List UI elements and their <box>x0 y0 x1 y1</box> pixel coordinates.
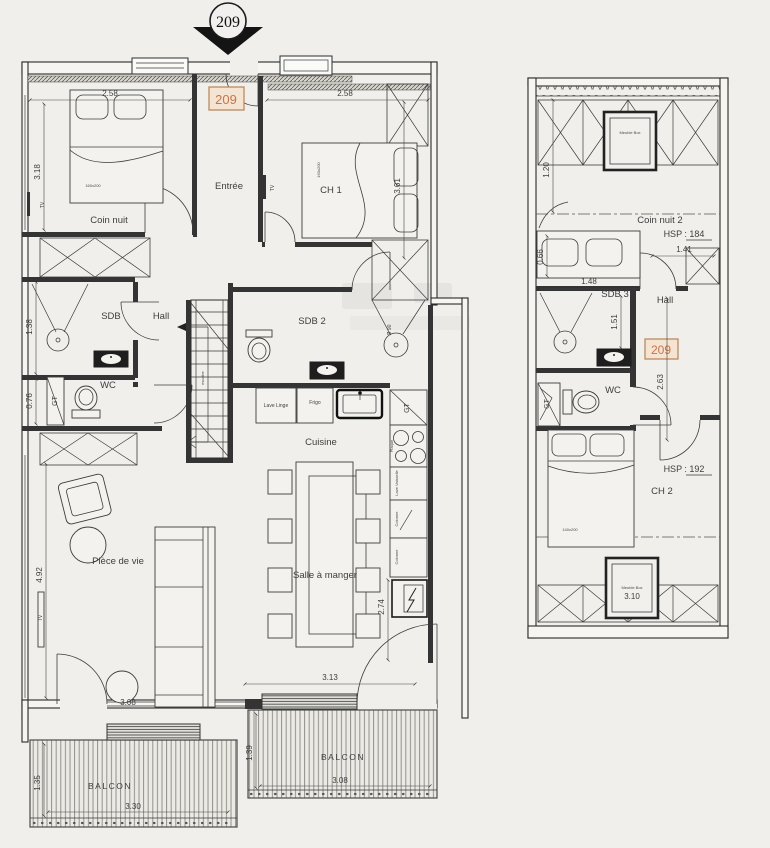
room-label-balcon-left: BALCON <box>88 781 132 791</box>
dim-label: 1.35 <box>33 775 42 791</box>
dim-label: 3.61 <box>393 178 402 194</box>
room-label-ch1: CH 1 <box>320 185 342 196</box>
hsp-note: HSP : 192 <box>664 464 705 474</box>
room-label-hall: Hall <box>657 295 673 306</box>
bed <box>70 90 163 203</box>
dim-label: 1.41 <box>676 245 692 254</box>
room-label-balcon-right: BALCON <box>321 752 365 762</box>
room-label-ch2: CH 2 <box>651 486 673 497</box>
bed-size-label: 160x200 <box>316 162 321 178</box>
shower <box>384 333 408 357</box>
window <box>132 58 188 74</box>
unit-main-level: escalier 160x200 160x200 <box>22 56 468 827</box>
dim-label: 2.63 <box>656 374 665 390</box>
unit-badge: 209 <box>209 87 244 110</box>
dim-label: 3.18 <box>33 164 42 180</box>
watermark <box>342 283 470 330</box>
bed <box>537 231 640 278</box>
gt-label: GT <box>544 398 551 408</box>
cooktop <box>390 425 427 467</box>
floor-plan-drawing: 209 <box>0 0 770 848</box>
room-label-salle-a-manger: Salle à manger <box>293 570 357 581</box>
sdb2-room: Ø 90 <box>246 300 425 379</box>
dining-table <box>296 462 353 647</box>
threshold <box>107 724 200 740</box>
tv-mark <box>263 175 266 199</box>
tv-label: TV <box>270 184 276 191</box>
dim-label: 3.10 <box>624 592 640 601</box>
bed <box>548 430 634 547</box>
living-room <box>38 473 215 707</box>
tv-label: TV <box>38 614 44 621</box>
wc2-room: GT <box>538 383 599 426</box>
section-marker: 209 <box>193 3 263 55</box>
meuble-box-label: Meuble Box <box>621 585 642 590</box>
closet-row-bottom: Meuble Box 3.10 <box>538 558 718 622</box>
bed-size-label: 140x200 <box>562 527 578 532</box>
threshold <box>262 694 357 709</box>
dim-label: 2.58 <box>102 89 118 98</box>
unit-badge-upper: 209 <box>645 339 678 359</box>
sdb-room <box>32 284 128 367</box>
dim-label: 4.92 <box>35 567 44 583</box>
coin-nuit-room: 160x200 <box>27 90 163 216</box>
sofa <box>155 527 215 707</box>
meuble-box <box>604 112 656 170</box>
room-label-sdb: SDB <box>101 311 121 322</box>
toilet <box>75 386 97 410</box>
gt-label: GT <box>52 395 59 405</box>
meuble-box-label: Meuble Box <box>619 130 640 135</box>
toilet <box>248 338 270 362</box>
cooktop-label: Plaque <box>389 439 394 452</box>
tall-unit-label: Colonne <box>394 549 399 565</box>
room-label-piece-de-vie: Pièce de vie <box>92 556 144 567</box>
room-label-coin-nuit: Coin nuit <box>90 215 128 226</box>
balcony-left <box>30 724 237 827</box>
unit-upper-level: Meuble Box Meuble Box 3.10 <box>528 78 728 638</box>
dim-label: 3.08 <box>120 698 136 707</box>
stairs-note: escalier <box>200 370 205 384</box>
hsp-note: HSP : 184 <box>664 229 705 239</box>
dim-label: 2.58 <box>337 89 353 98</box>
unit-number: 209 <box>651 343 671 357</box>
armchair <box>57 473 112 525</box>
room-label-hall: Hall <box>153 311 169 322</box>
stairs-up-arrow <box>177 323 186 331</box>
room-label-coin-nuit2: Coin nuit 2 <box>637 215 682 226</box>
toilet <box>573 391 599 413</box>
tv-mark <box>27 192 30 216</box>
dim-label: 1.48 <box>581 277 597 286</box>
washer-label: Lave Linge <box>264 403 289 409</box>
room-label-entree: Entrée <box>215 181 243 192</box>
fridge-label: Frigo <box>309 400 321 406</box>
dim-label: 0.76 <box>25 393 34 409</box>
hatch-band <box>28 76 352 82</box>
dim-label: 2.74 <box>377 599 386 615</box>
room-label-cuisine: Cuisine <box>305 437 337 448</box>
room-label-sdb2: SDB 2 <box>298 316 325 327</box>
gt-label: GT <box>404 402 411 412</box>
dim-label: 1.20 <box>542 162 551 178</box>
room-label-sdb3: SDB 3 <box>601 289 628 300</box>
bed-size-label: 160x200 <box>85 183 101 188</box>
closet-row-top: Meuble Box <box>538 100 718 170</box>
dim-label: 0.66 <box>536 249 545 265</box>
dim-label: 3.13 <box>322 673 338 682</box>
dim-label: 1.39 <box>245 745 254 761</box>
dim-label: 1.38 <box>25 319 34 335</box>
dim-label: 1.51 <box>610 314 619 330</box>
dim-label: 3.08 <box>332 776 348 785</box>
room-label-wc: WC <box>605 385 621 396</box>
shower-diameter: Ø 90 <box>387 324 393 335</box>
unit-number: 209 <box>215 92 237 107</box>
ch2-room: 140x200 <box>548 430 634 547</box>
staircase: escalier <box>177 300 228 458</box>
tall-unit-label: Colonne <box>394 511 399 527</box>
dim-label: 3.30 <box>125 802 141 811</box>
insulation-band <box>534 86 722 96</box>
tv-label: TV <box>40 201 46 208</box>
room-label-wc: WC <box>100 380 116 391</box>
floor-plan-page: 209 <box>0 0 770 848</box>
dishwasher-label: Lave Vaisselle <box>394 469 399 495</box>
shower <box>554 331 576 353</box>
section-marker-number: 209 <box>216 14 240 31</box>
coin-nuit2-room <box>537 231 640 278</box>
window <box>280 56 332 75</box>
dining-area <box>268 462 380 647</box>
